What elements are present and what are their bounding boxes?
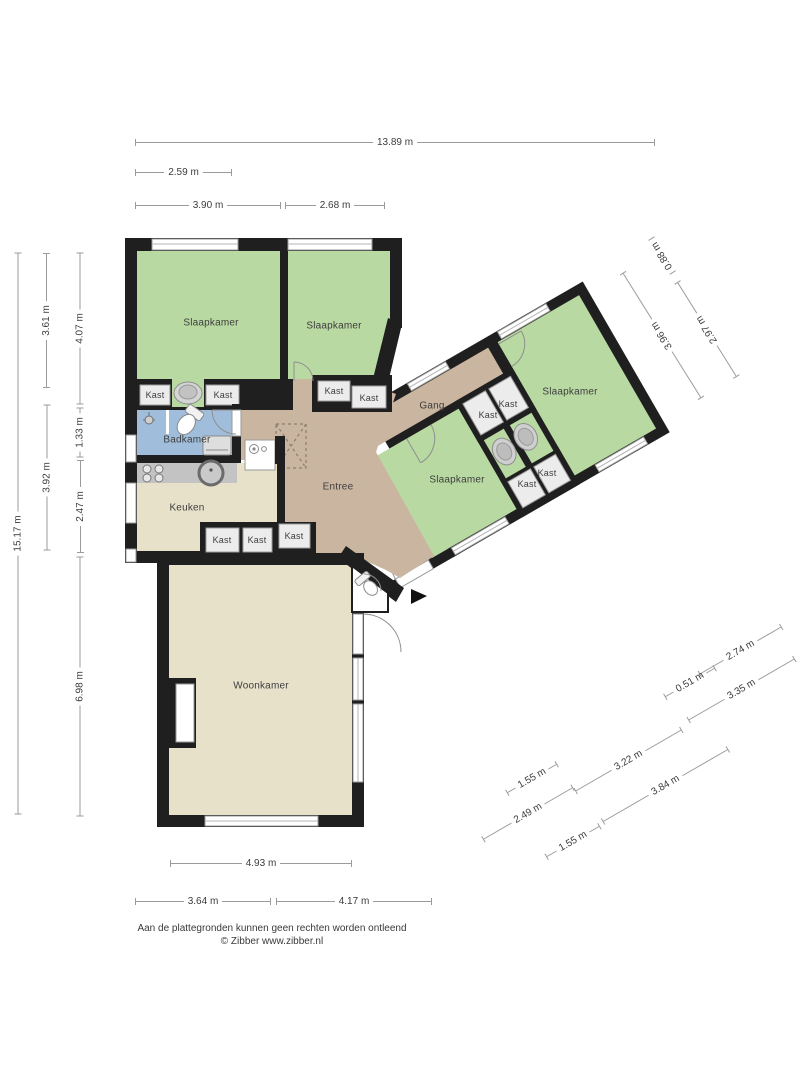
dim-left: 2.47 m — [74, 460, 87, 553]
room-label-slaapkamer-links: Slaapkamer — [183, 318, 238, 329]
closet-label: Kast — [499, 399, 518, 409]
room-label-gang: Gang — [419, 401, 444, 412]
closet-label: Kast — [479, 410, 498, 420]
closet-label: Kast — [360, 393, 379, 403]
closet-label: Kast — [518, 479, 537, 489]
dim-top: 3.90 m — [135, 199, 281, 212]
dim-top: 2.59 m — [135, 166, 232, 179]
disclaimer-text: Aan de plattegronden kunnen geen rechten… — [137, 923, 406, 934]
room-label-slaapkamer-rechtsonder: Slaapkamer — [429, 475, 484, 486]
room-label-entree: Entree — [323, 482, 354, 493]
dim-bottom: 3.64 m — [135, 895, 271, 908]
copyright-text: © Zibber www.zibber.nl — [221, 936, 323, 947]
dim-top: 2.68 m — [285, 199, 385, 212]
dim-left: 3.92 m — [41, 405, 54, 551]
closet-label: Kast — [538, 468, 557, 478]
room-label-badkamer: Badkamer — [163, 435, 210, 446]
dim-total-height: 15.17 m — [12, 253, 25, 815]
floorplan-page: Slaapkamer Slaapkamer Badkamer Keuken En… — [0, 0, 809, 1080]
fireplace-icon — [166, 678, 196, 748]
room-label-slaapkamer-midden: Slaapkamer — [306, 321, 361, 332]
basin-icon — [174, 382, 202, 404]
room-label-keuken: Keuken — [169, 503, 204, 514]
closet-label: Kast — [285, 531, 304, 541]
dim-bottom: 4.17 m — [276, 895, 432, 908]
dim-left: 1.33 m — [74, 408, 87, 458]
dim-total-width: 13.89 m — [135, 136, 655, 149]
closet-label: Kast — [213, 535, 232, 545]
floorplan-graphic — [0, 0, 809, 1080]
washer-icon — [245, 440, 275, 470]
closet-label: Kast — [325, 386, 344, 396]
dim-left: 6.98 m — [74, 557, 87, 817]
entrance-arrow-icon — [411, 589, 427, 604]
closet-label: Kast — [146, 390, 165, 400]
dim-bottom: 4.93 m — [170, 857, 352, 870]
dim-left: 4.07 m — [74, 253, 87, 405]
closet-label: Kast — [248, 535, 267, 545]
room-label-woonkamer: Woonkamer — [233, 681, 289, 692]
room-label-slaapkamer-rechtsboven: Slaapkamer — [542, 387, 597, 398]
kitchen-sink-icon — [199, 461, 223, 485]
dim-left: 3.61 m — [40, 253, 53, 388]
closet-label: Kast — [214, 390, 233, 400]
